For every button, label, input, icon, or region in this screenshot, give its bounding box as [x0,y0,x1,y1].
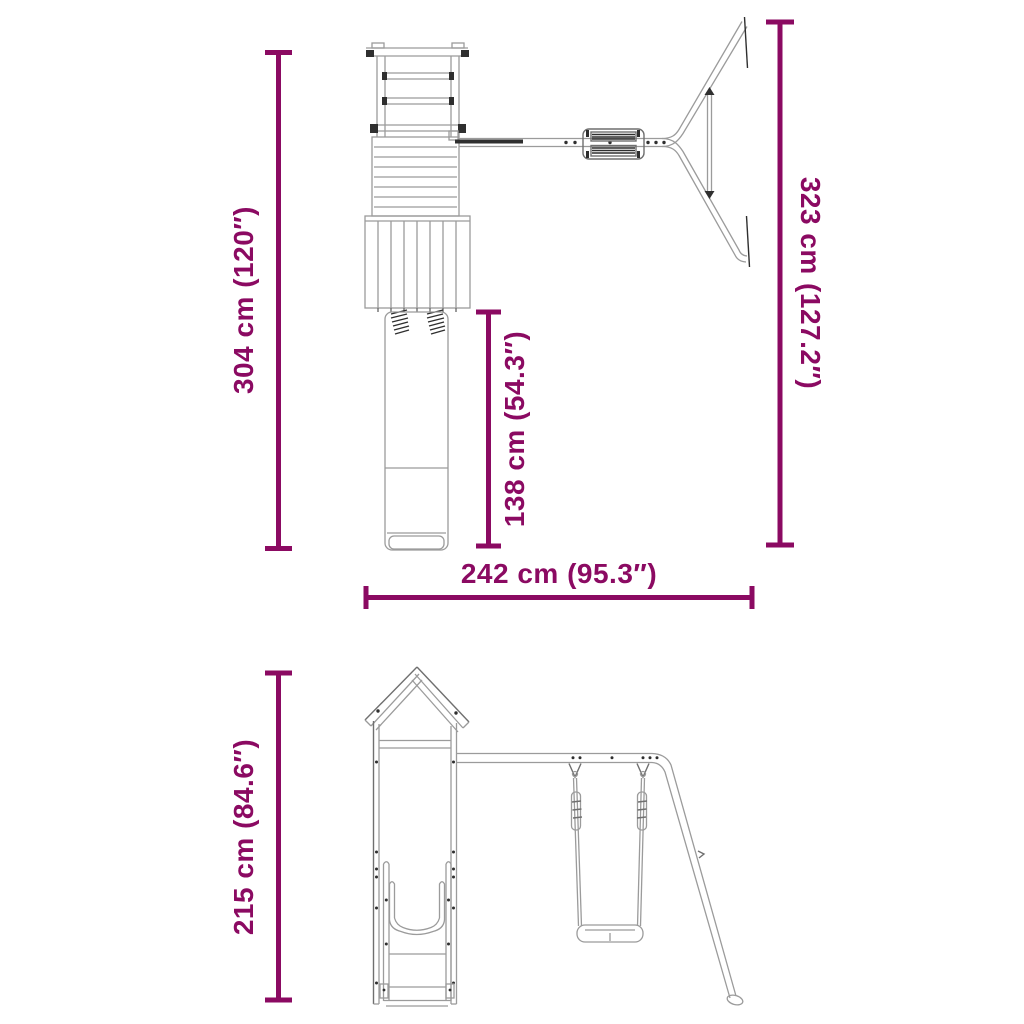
dimension-diagram: 304 cm (120″) 323 cm (127.2″) 138 cm (54… [0,0,1024,1024]
grip-right-coil [427,310,445,334]
dimension-depth-left: 304 cm (120″) [228,53,292,549]
front-tower-posts [374,721,457,1004]
front-swing-frame [457,754,744,1007]
front-view: 215 cm (84.6″) [228,667,744,1007]
plan-view: 304 cm (120″) 323 cm (127.2″) 138 cm (54… [228,17,826,609]
plan-slide [385,312,448,550]
front-swing [569,764,649,943]
plan-dimensions: 304 cm (120″) 323 cm (127.2″) 138 cm (54… [228,22,826,609]
front-roof [365,667,469,732]
front-dimensions: 215 cm (84.6″) [228,673,292,1000]
dimension-height-left: 215 cm (84.6″) [228,673,292,1000]
front-slide [380,862,454,1006]
dimension-label-323: 323 cm (127.2″) [795,177,826,389]
plan-swing-seat [583,129,644,159]
grip-left-coil [391,310,409,334]
plan-slide-grips [391,310,445,334]
plan-wall-planks [372,137,459,216]
plan-ladder [366,43,469,137]
dimension-frame-right: 323 cm (127.2″) [766,22,826,545]
dimension-label-138: 138 cm (54.3″) [499,331,530,527]
dimension-label-242: 242 cm (95.3″) [461,558,657,589]
dimension-label-304: 304 cm (120″) [228,206,259,394]
diagram-canvas: 304 cm (120″) 323 cm (127.2″) 138 cm (54… [0,0,1024,1024]
dimension-label-215: 215 cm (84.6″) [228,739,259,935]
plan-swing-frame [662,17,750,267]
dimension-slide-length: 138 cm (54.3″) [476,312,530,546]
dimension-width-bottom: 242 cm (95.3″) [366,558,752,609]
plan-roof [365,216,470,312]
